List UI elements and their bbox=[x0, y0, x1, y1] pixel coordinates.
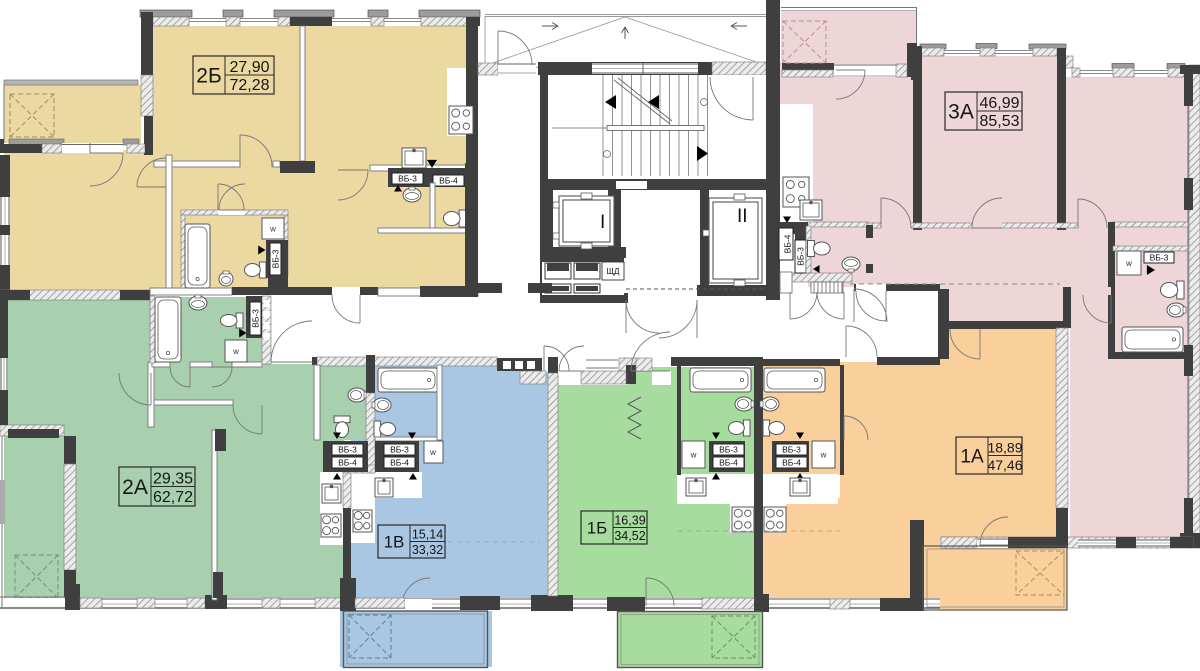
svg-text:ВБ-4: ВБ-4 bbox=[439, 176, 458, 186]
svg-text:3А: 3А bbox=[948, 101, 974, 124]
svg-text:ВБ-4: ВБ-4 bbox=[390, 458, 409, 468]
svg-text:w: w bbox=[232, 347, 239, 356]
svg-text:2А: 2А bbox=[122, 476, 148, 499]
svg-text:62,72: 62,72 bbox=[153, 489, 193, 506]
svg-text:ВБ-4: ВБ-4 bbox=[719, 458, 738, 468]
svg-text:ВБ-3: ВБ-3 bbox=[398, 174, 417, 184]
svg-text:15,14: 15,14 bbox=[412, 528, 443, 542]
svg-text:27,90: 27,90 bbox=[229, 59, 269, 76]
svg-text:34,52: 34,52 bbox=[614, 529, 645, 543]
svg-text:w: w bbox=[269, 225, 276, 234]
svg-text:I: I bbox=[600, 212, 605, 233]
svg-text:29,35: 29,35 bbox=[153, 471, 193, 488]
svg-text:ВБ-4: ВБ-4 bbox=[783, 234, 793, 253]
svg-text:ВБ-4: ВБ-4 bbox=[782, 458, 801, 468]
svg-text:72,28: 72,28 bbox=[229, 77, 269, 94]
svg-text:w: w bbox=[429, 448, 436, 457]
svg-text:33,32: 33,32 bbox=[412, 543, 443, 557]
svg-text:85,53: 85,53 bbox=[979, 113, 1019, 130]
svg-text:II: II bbox=[737, 206, 748, 227]
svg-text:w: w bbox=[1125, 259, 1132, 268]
svg-text:18,89: 18,89 bbox=[987, 440, 1022, 456]
svg-text:w: w bbox=[690, 451, 697, 460]
svg-text:47,46: 47,46 bbox=[987, 457, 1022, 473]
svg-text:ВБ-3: ВБ-3 bbox=[1150, 253, 1169, 263]
svg-text:2Б: 2Б bbox=[196, 65, 221, 88]
svg-text:ВБ-3: ВБ-3 bbox=[390, 445, 409, 455]
svg-text:ВБ-3: ВБ-3 bbox=[271, 249, 281, 268]
svg-text:1А: 1А bbox=[960, 446, 984, 467]
svg-text:46,99: 46,99 bbox=[979, 95, 1019, 112]
svg-text:ВБ-3: ВБ-3 bbox=[338, 445, 357, 455]
svg-text:w: w bbox=[820, 451, 827, 460]
svg-text:1Б: 1Б bbox=[587, 519, 608, 538]
svg-text:ВБ-4: ВБ-4 bbox=[338, 458, 357, 468]
svg-text:1В: 1В bbox=[384, 533, 405, 552]
svg-text:ВБ-3: ВБ-3 bbox=[796, 247, 806, 266]
svg-text:ВБ-3: ВБ-3 bbox=[719, 445, 738, 455]
svg-text:ВБ-3: ВБ-3 bbox=[782, 445, 801, 455]
svg-text:16,39: 16,39 bbox=[614, 514, 645, 528]
svg-text:ЩД: ЩД bbox=[607, 267, 621, 276]
svg-text:ВБ-3: ВБ-3 bbox=[251, 309, 261, 328]
